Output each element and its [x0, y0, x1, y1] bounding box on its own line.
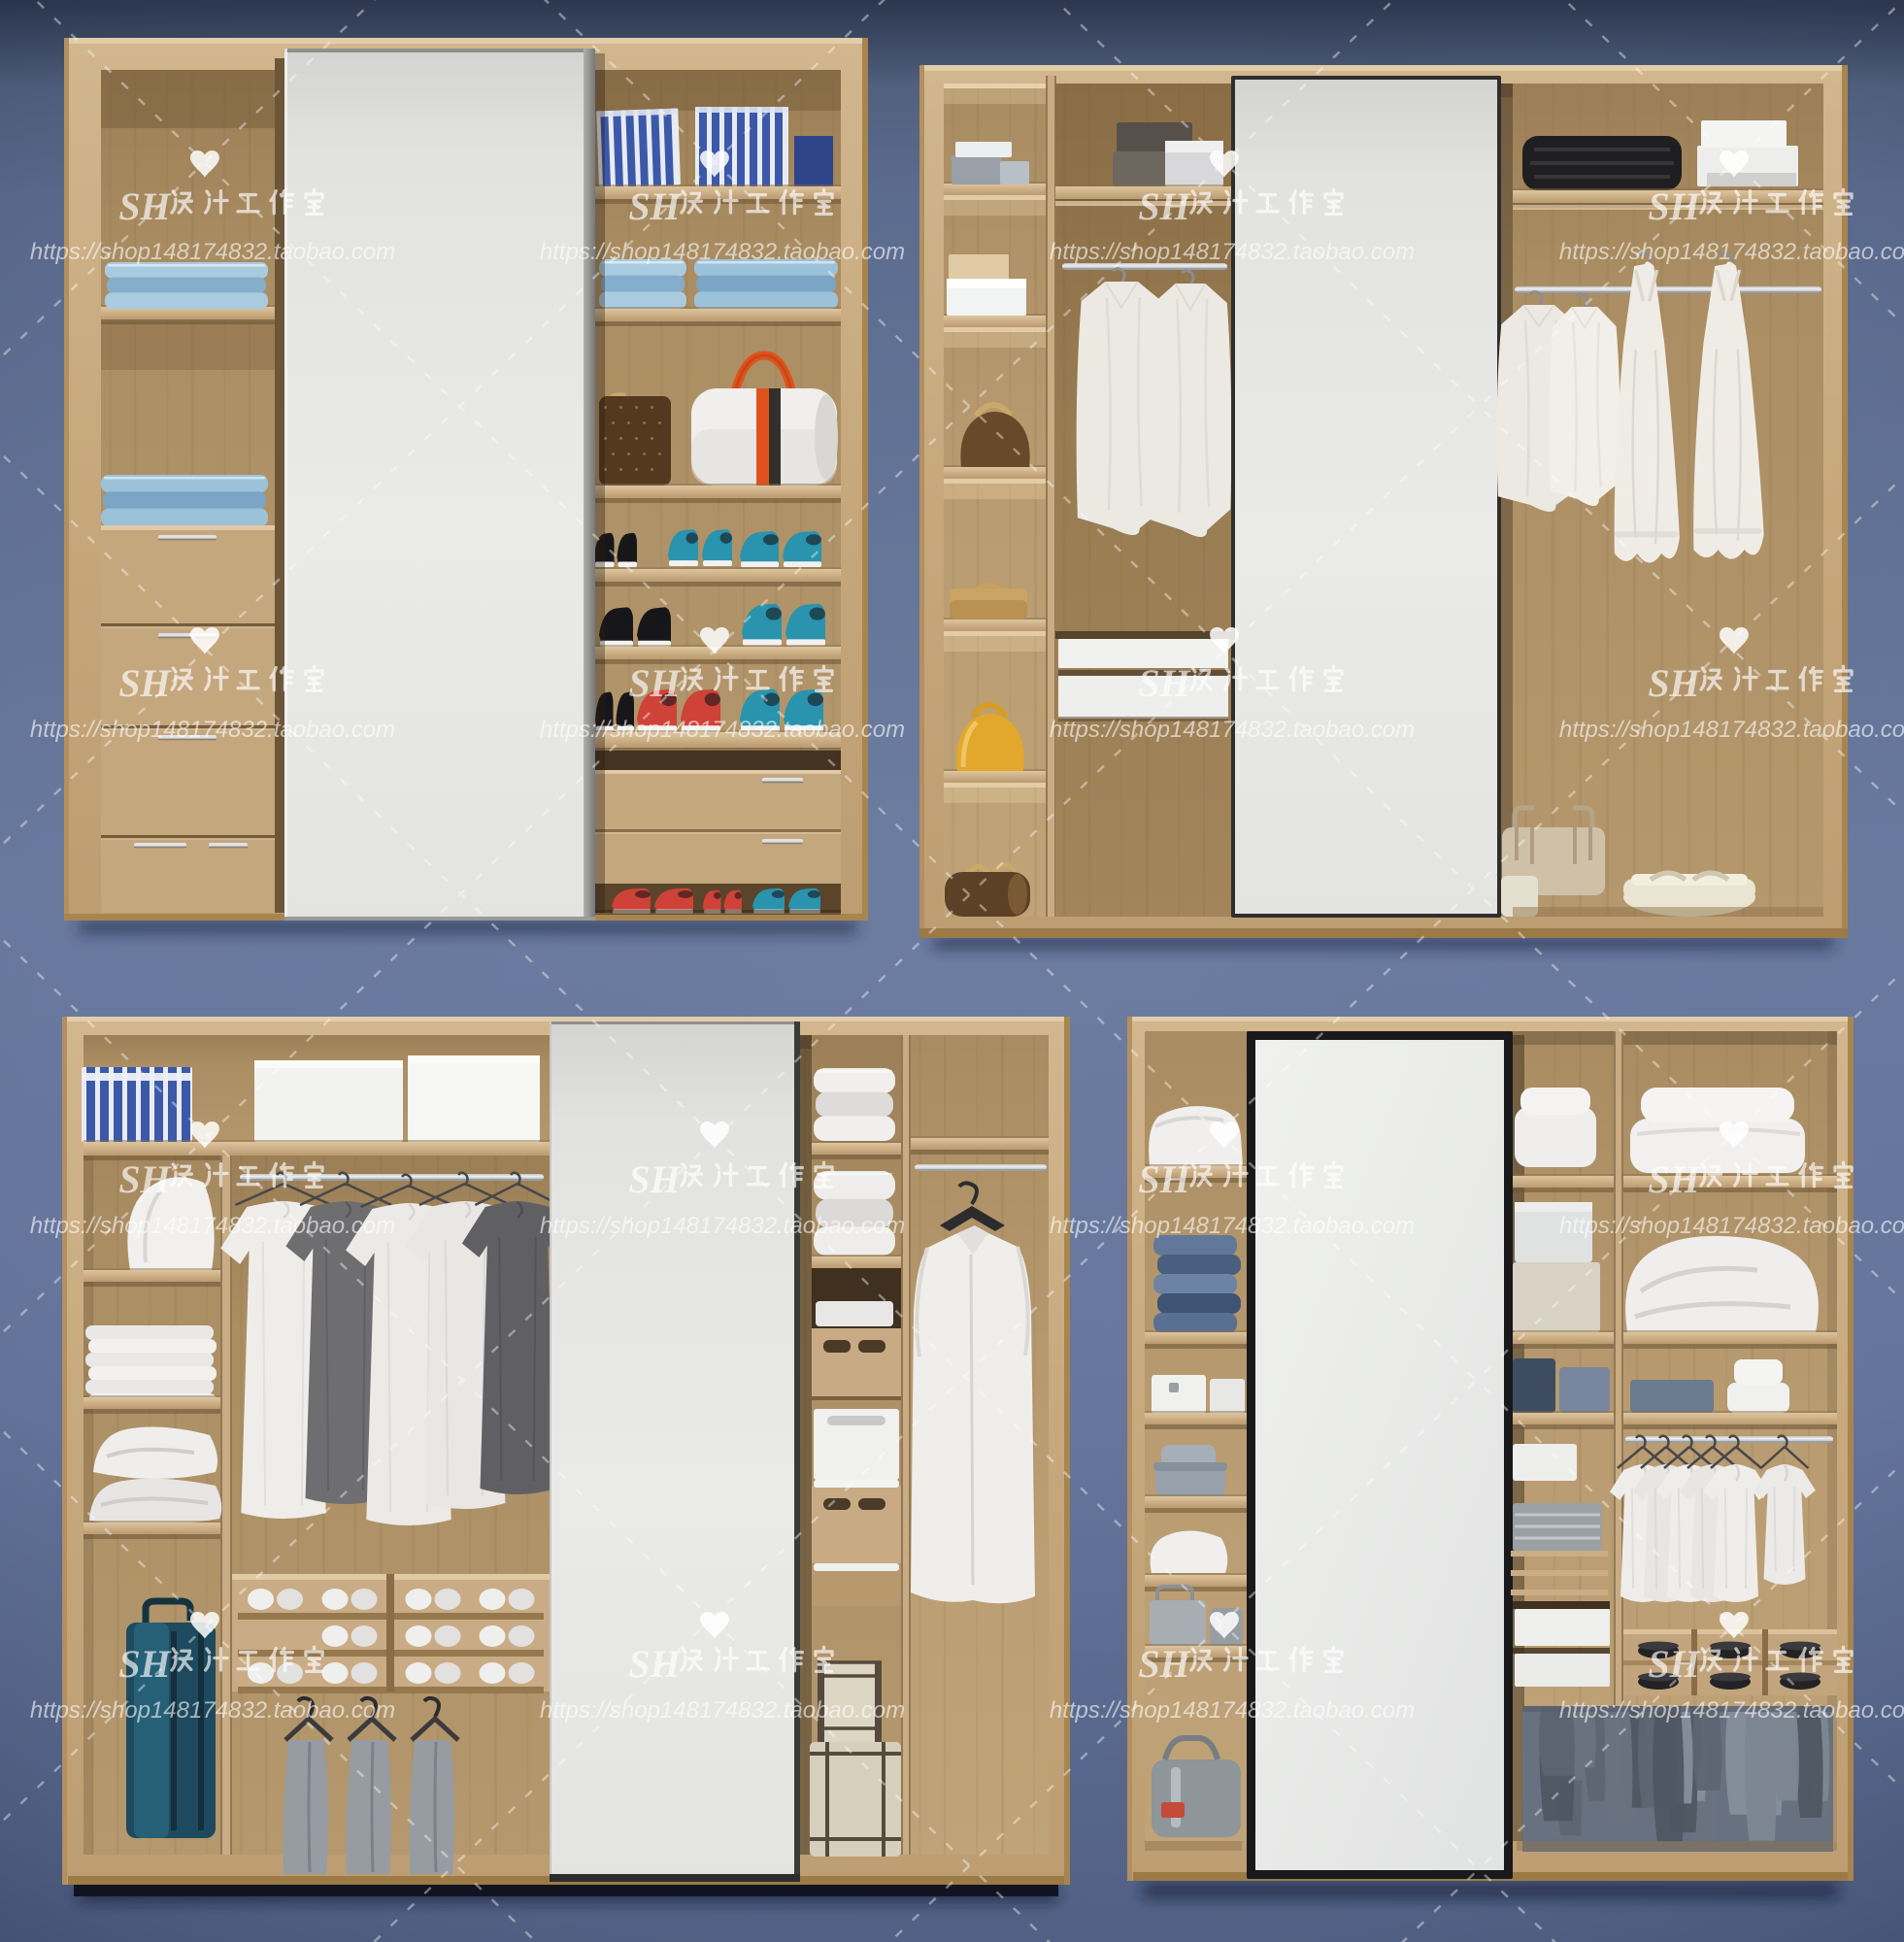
svg-text:SH: SH	[1138, 661, 1191, 705]
svg-text:SH: SH	[118, 661, 172, 705]
svg-text:SH: SH	[628, 1642, 682, 1686]
svg-text:https://shop148174832.taobao.c: https://shop148174832.taobao.com	[30, 1697, 395, 1724]
svg-text:https://shop148174832.taobao.c: https://shop148174832.taobao.com	[540, 239, 905, 265]
svg-text:https://shop148174832.taobao.c: https://shop148174832.taobao.com	[540, 717, 905, 743]
svg-text:SH: SH	[628, 661, 682, 705]
svg-text:SH: SH	[1138, 1157, 1191, 1201]
svg-text:https://shop148174832.taobao.c: https://shop148174832.taobao.com	[1050, 1697, 1415, 1724]
svg-text:https://shop148174832.taobao.c: https://shop148174832.taobao.com	[1559, 717, 1904, 743]
svg-text:https://shop148174832.taobao.c: https://shop148174832.taobao.com	[540, 1213, 905, 1239]
svg-text:SH: SH	[628, 184, 682, 228]
svg-text:https://shop148174832.taobao.c: https://shop148174832.taobao.com	[540, 1697, 905, 1724]
svg-text:https://shop148174832.taobao.c: https://shop148174832.taobao.com	[30, 717, 395, 743]
svg-text:SH: SH	[1138, 184, 1191, 228]
svg-text:SH: SH	[628, 1157, 682, 1201]
svg-text:SH: SH	[118, 184, 172, 228]
svg-text:SH: SH	[118, 1642, 172, 1686]
svg-text:https://shop148174832.taobao.c: https://shop148174832.taobao.com	[1559, 1213, 1904, 1239]
svg-text:https://shop148174832.taobao.c: https://shop148174832.taobao.com	[30, 239, 395, 265]
svg-text:SH: SH	[1648, 661, 1701, 705]
svg-text:SH: SH	[1648, 184, 1701, 228]
svg-text:https://shop148174832.taobao.c: https://shop148174832.taobao.com	[1559, 239, 1904, 265]
svg-text:https://shop148174832.taobao.c: https://shop148174832.taobao.com	[1050, 717, 1415, 743]
svg-text:SH: SH	[1138, 1642, 1191, 1686]
svg-text:SH: SH	[118, 1157, 172, 1201]
svg-text:SH: SH	[1648, 1642, 1701, 1686]
svg-text:SH: SH	[1648, 1157, 1701, 1201]
svg-text:https://shop148174832.taobao.c: https://shop148174832.taobao.com	[30, 1213, 395, 1239]
svg-text:https://shop148174832.taobao.c: https://shop148174832.taobao.com	[1050, 1213, 1415, 1239]
svg-text:https://shop148174832.taobao.c: https://shop148174832.taobao.com	[1050, 239, 1415, 265]
svg-text:https://shop148174832.taobao.c: https://shop148174832.taobao.com	[1559, 1697, 1904, 1724]
